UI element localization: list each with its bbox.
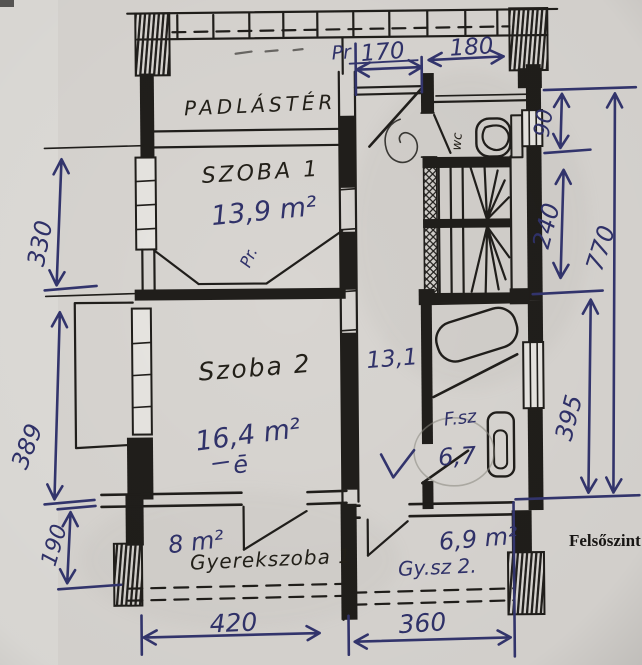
floor-plan-canvas: PADLÁSTÉR SZOBA 1 Szoba 2 Gyerekszoba 1 … bbox=[0, 0, 642, 665]
floor-plan-photo: PADLÁSTÉR SZOBA 1 Szoba 2 Gyerekszoba 1 … bbox=[0, 0, 642, 665]
photo-vignette bbox=[0, 0, 642, 665]
